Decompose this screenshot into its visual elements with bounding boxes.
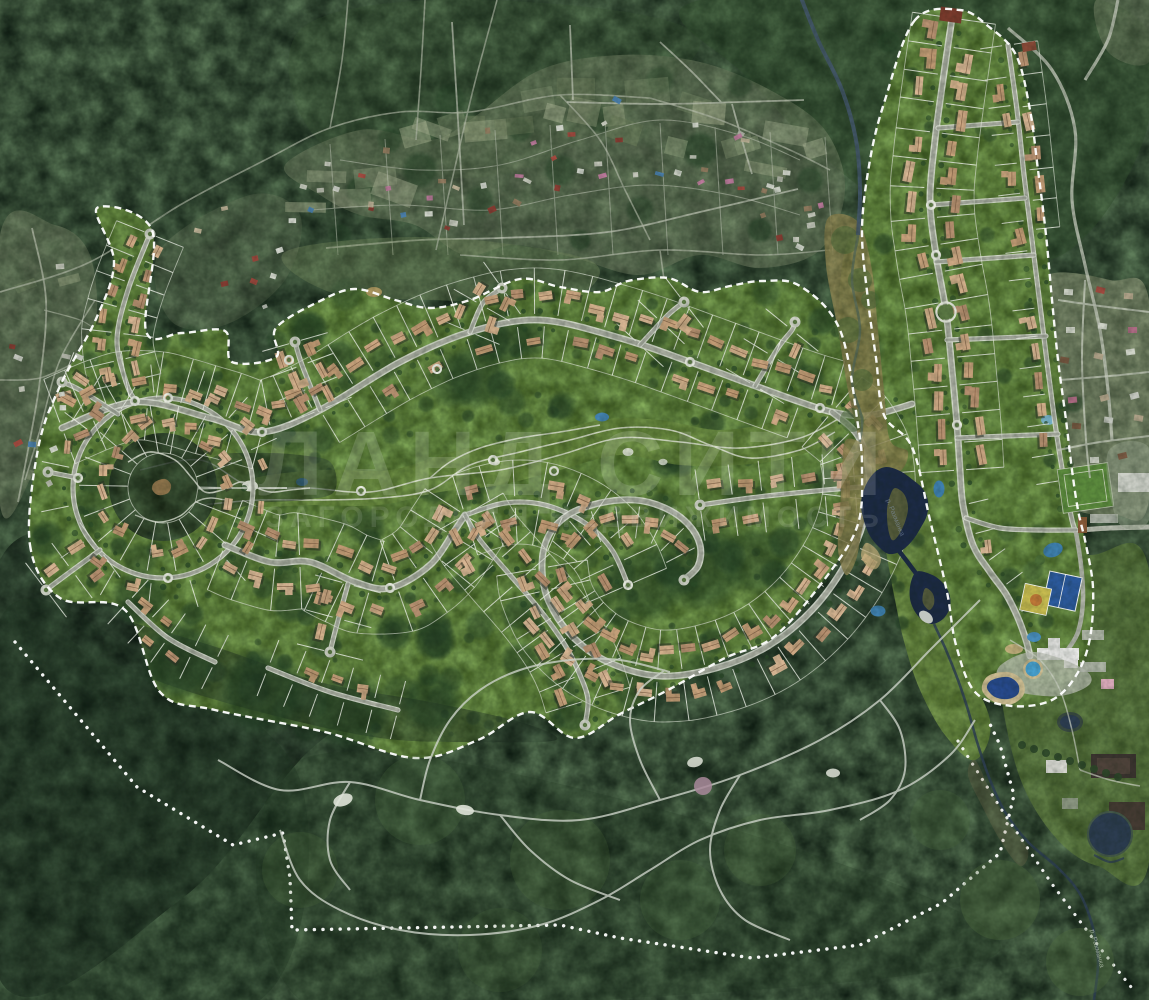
svg-text:ЛАНД СИТИ: ЛАНД СИТИ bbox=[258, 413, 891, 515]
svg-text:ЗАГОРОДНАЯ НЕДВИЖИМОСТЬ: ЗАГОРОДНАЯ НЕДВИЖИМОСТЬ bbox=[265, 501, 885, 534]
